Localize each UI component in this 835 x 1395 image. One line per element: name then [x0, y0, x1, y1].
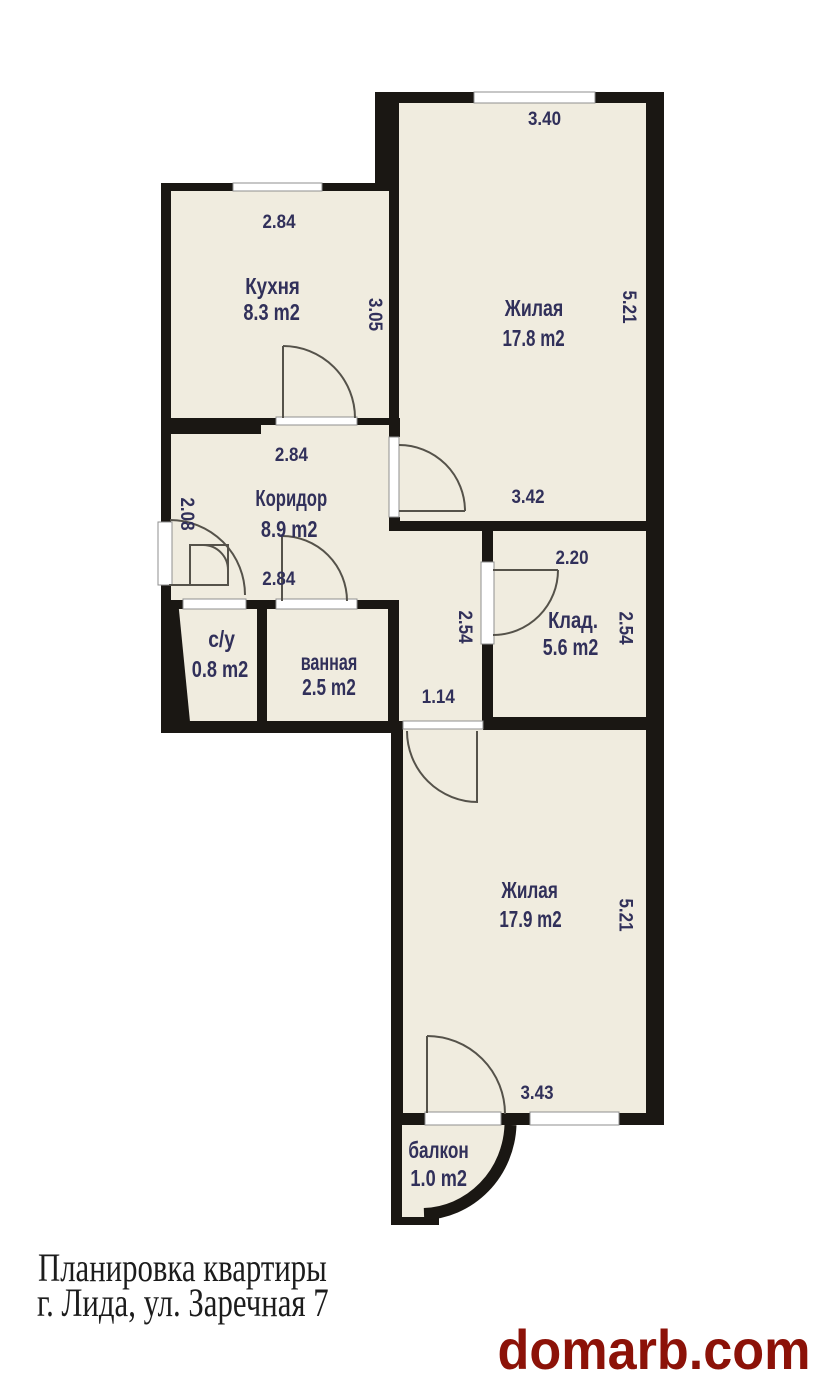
svg-text:2.08: 2.08	[177, 497, 199, 530]
svg-text:3.43: 3.43	[520, 1081, 553, 1103]
svg-text:г. Лида, ул. Заречная 7: г. Лида, ул. Заречная 7	[37, 1280, 329, 1325]
svg-text:Клад.: Клад.	[548, 608, 598, 633]
svg-text:5.6 m2: 5.6 m2	[543, 635, 599, 661]
svg-text:Коридор: Коридор	[255, 487, 327, 512]
svg-text:2.20: 2.20	[555, 546, 588, 568]
svg-text:2.84: 2.84	[275, 443, 309, 465]
svg-text:domarb.com: domarb.com	[498, 1320, 811, 1382]
svg-text:8.3 m2: 8.3 m2	[243, 300, 300, 326]
svg-text:5.21: 5.21	[615, 898, 637, 931]
svg-text:2.5 m2: 2.5 m2	[302, 676, 356, 701]
svg-text:Жилая: Жилая	[500, 879, 557, 904]
svg-text:ванная: ванная	[301, 650, 358, 675]
svg-text:1.14: 1.14	[422, 685, 456, 707]
svg-text:2.84: 2.84	[262, 567, 296, 589]
svg-text:0.8 m2: 0.8 m2	[192, 657, 249, 683]
svg-text:17.8 m2: 17.8 m2	[502, 327, 564, 352]
svg-text:3.05: 3.05	[365, 298, 387, 331]
svg-text:1.0 m2: 1.0 m2	[410, 1166, 467, 1192]
svg-text:Кухня: Кухня	[245, 274, 300, 299]
svg-text:3.42: 3.42	[511, 485, 544, 507]
svg-text:17.9 m2: 17.9 m2	[499, 908, 561, 933]
svg-text:2.54: 2.54	[455, 610, 477, 644]
svg-text:2.84: 2.84	[262, 210, 296, 232]
svg-text:с/у: с/у	[208, 627, 235, 652]
svg-text:балкон: балкон	[408, 1139, 468, 1164]
svg-text:3.40: 3.40	[528, 107, 561, 129]
svg-text:5.21: 5.21	[619, 290, 641, 323]
svg-text:Жилая: Жилая	[504, 296, 563, 322]
svg-text:2.54: 2.54	[615, 611, 637, 645]
svg-text:8.9 m2: 8.9 m2	[261, 517, 318, 543]
